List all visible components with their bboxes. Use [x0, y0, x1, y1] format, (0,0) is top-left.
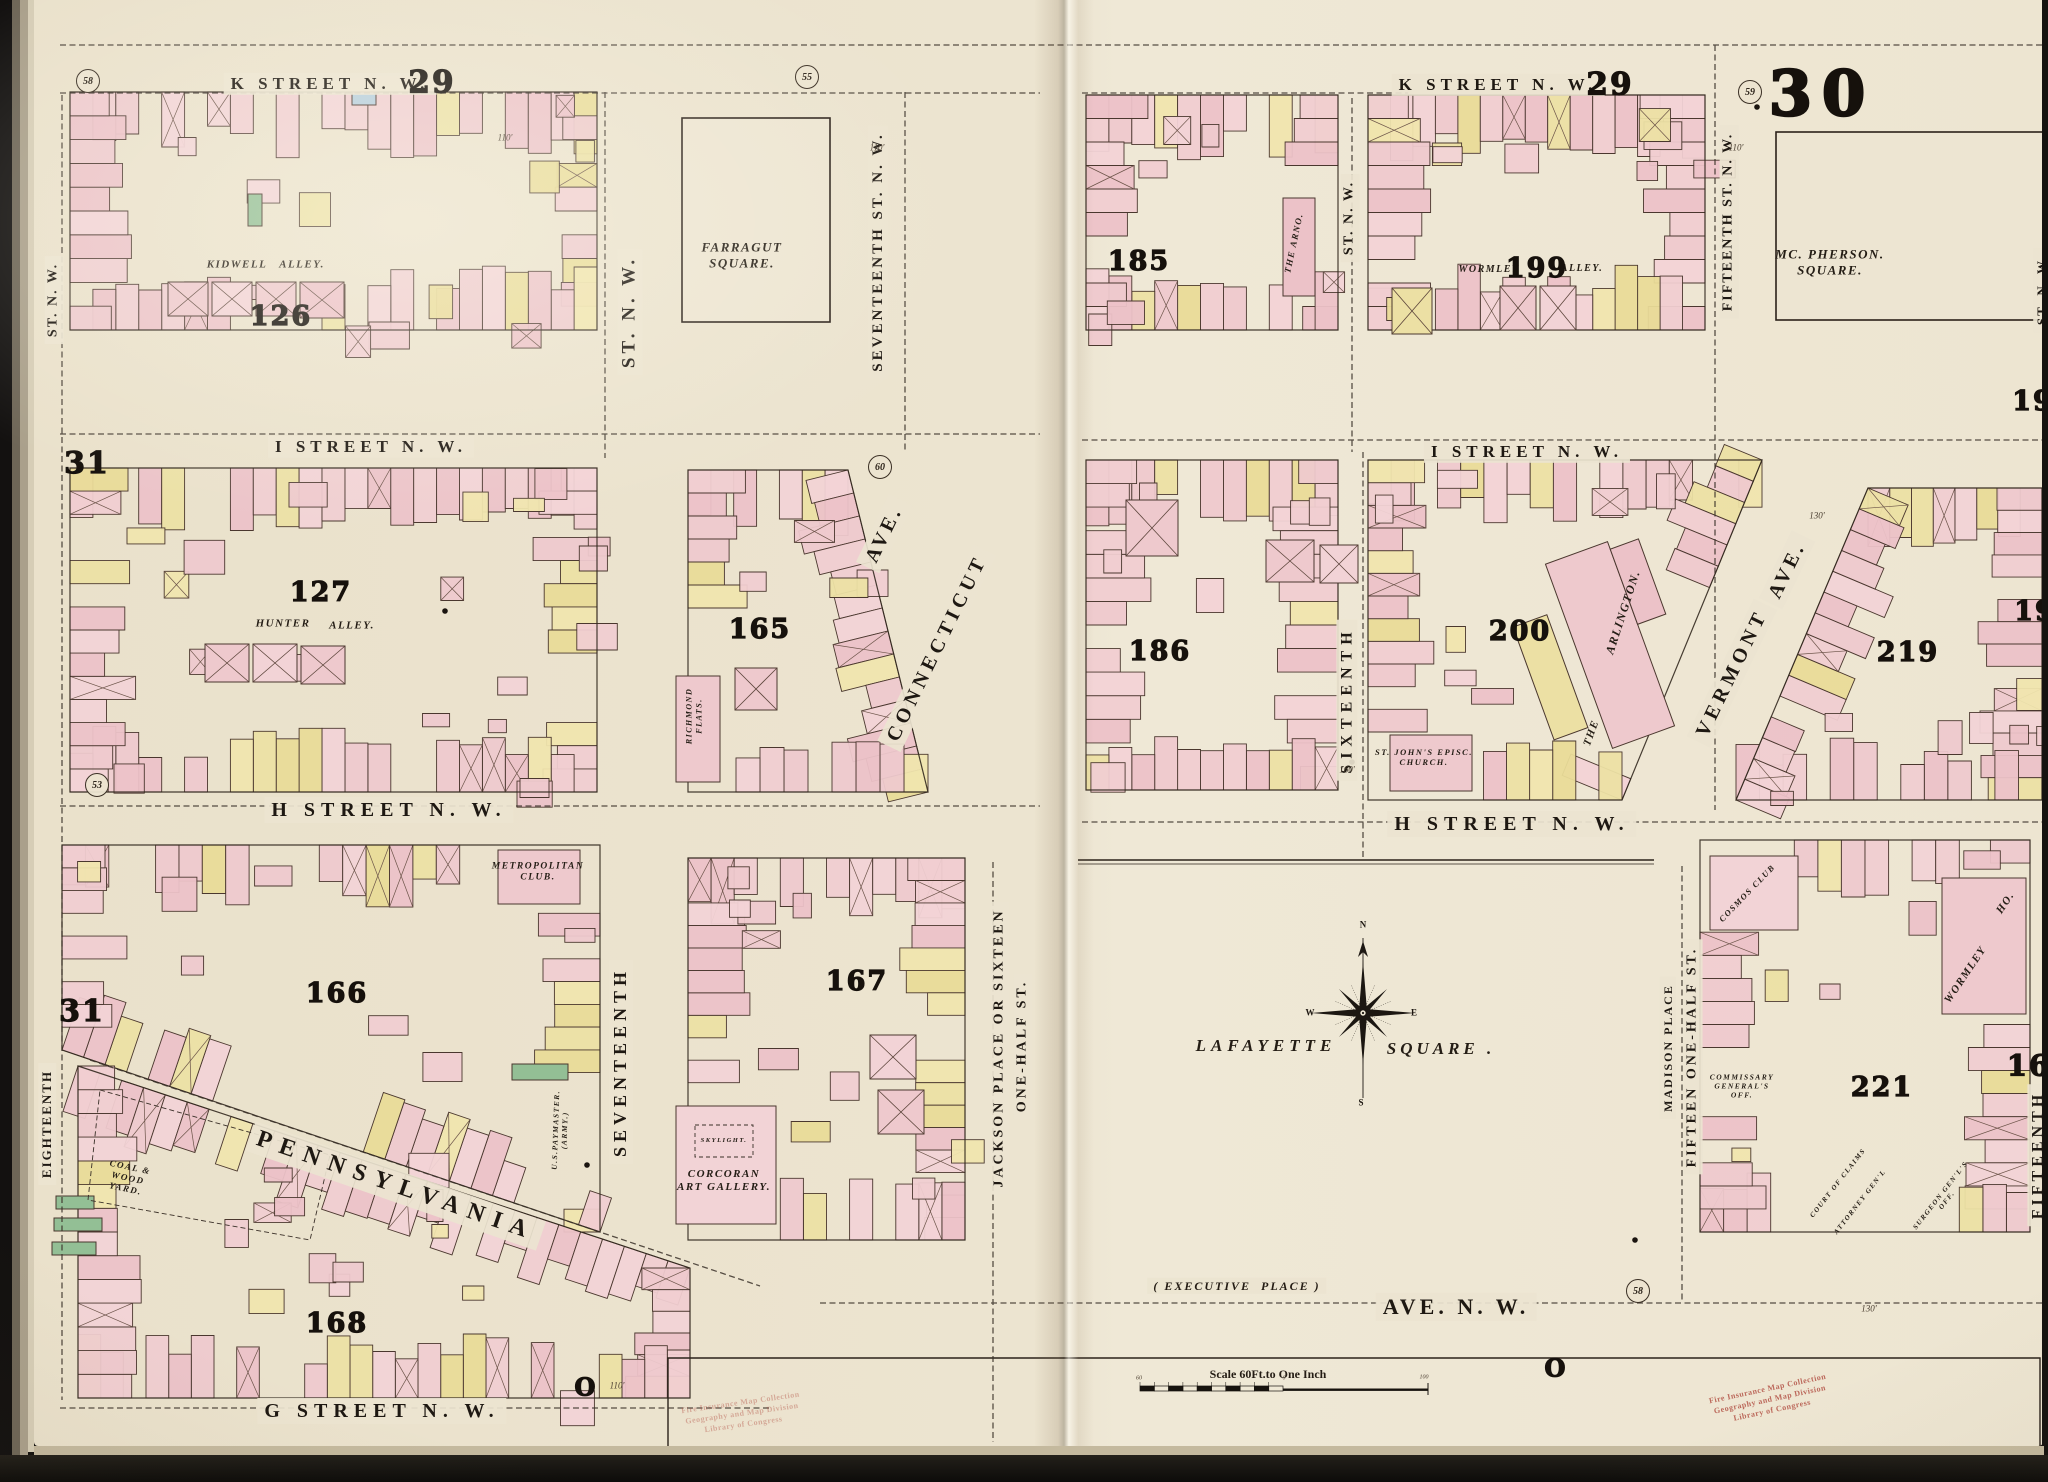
library-of-congress-stamp: Fire Insurance Map Collection Geography … — [1708, 1372, 1832, 1429]
landmark-label-kidwell-alley: ALLEY. — [279, 258, 325, 271]
scale-tick: 100 — [1420, 1374, 1429, 1381]
street-label-one-half-st: ONE-HALF ST. — [1014, 973, 1033, 1119]
block-number-166: 166 — [306, 978, 368, 1010]
street-label-eighteenth: EIGHTEENTH — [38, 1063, 56, 1185]
library-of-congress-stamp: Fire Insurance Map Collection Geography … — [681, 1390, 804, 1439]
block-number-185: 185 — [1108, 246, 1170, 278]
book-edge-left — [0, 0, 12, 1482]
scale-tick: 0 — [1283, 1375, 1286, 1382]
street-label-h-street-left: H STREET N. W. — [264, 797, 513, 823]
landmark-label-the: THE — [1581, 718, 1603, 748]
street-label-i-street-left: I STREET N. W. — [268, 436, 474, 458]
map-labels-layer: K STREET N. W.K STREET N. W.I STREET N. … — [0, 0, 2048, 1482]
street-label-connecticut: CONNECTICUT — [877, 544, 996, 752]
circled-plate-number: 58 — [1626, 1279, 1650, 1303]
landmark-label-lafayette: LAFAYETTE — [1196, 1036, 1337, 1056]
circled-plate-number: 59 — [1738, 80, 1762, 104]
landmark-label-us-paymaster: U.S.PAYMASTER. (ARMY.) — [550, 1090, 571, 1170]
page-number-n31-top: 31 — [64, 446, 110, 482]
circled-plate-number: 60 — [868, 455, 892, 479]
circled-plate-number: 58 — [76, 69, 100, 93]
landmark-label-hunter: HUNTER — [256, 617, 311, 630]
block-number-167: 167 — [826, 966, 888, 998]
page-edge-bottom — [34, 1446, 2044, 1455]
landmark-label-the-arno: THE ARNO. — [1282, 212, 1305, 274]
block-number-168: 168 — [306, 1308, 368, 1340]
dimension-label: 110' — [1729, 143, 1744, 154]
street-label-k-street-right: K STREET N. W. — [1392, 74, 1605, 96]
street-label-ave-nw: AVE. N. W. — [1376, 1293, 1537, 1321]
dimension-label: 130' — [1861, 1304, 1876, 1315]
compass-s-label: S — [1358, 1098, 1363, 1109]
landmark-label-arlington: ARLINGTON. — [1603, 568, 1644, 656]
street-label-h-street-right: H STREET N. W. — [1387, 811, 1636, 837]
compass-n-label: N — [1360, 920, 1367, 931]
block-number-219: 219 — [1877, 637, 1939, 669]
page-number-k29-left: 29 — [408, 64, 455, 101]
page-number-k29-right: 29 — [1586, 66, 1633, 103]
landmark-label-richmond-flats: RICHMOND FLATS. — [684, 688, 703, 744]
street-label-sixteenth: SIXTEENTH — [1336, 619, 1357, 780]
street-label-madison-place: MADISON PLACE — [1660, 977, 1676, 1119]
landmark-label-commissary: COMMISSARY GENERAL'S OFF. — [1710, 1073, 1774, 1100]
block-number-200: 200 — [1489, 616, 1551, 648]
landmark-label-corcoran-art-gallery: CORCORAN ART GALLERY. — [677, 1168, 771, 1194]
landmark-label-lafayette-square: SQUARE . — [1387, 1039, 1496, 1059]
landmark-label-wormley-ho-1: WORMLEY — [1942, 944, 1990, 1006]
street-label-st-nw-16th-top: ST. N. W. — [1341, 174, 1360, 262]
page-edge-strip — [20, 0, 28, 1460]
scale-label: Scale 60Ft.to One Inch — [1210, 1367, 1327, 1381]
circled-plate-number: 53 — [85, 773, 109, 797]
street-label-vermont: VERMONT — [1687, 598, 1778, 747]
compass-e-label: E — [1411, 1008, 1417, 1019]
page-number-sheet-30: 30 — [1769, 57, 1875, 131]
scanned-atlas-page: K STREET N. W.K STREET N. W.I STREET N. … — [0, 0, 2048, 1482]
compass-w-label: W — [1306, 1008, 1315, 1019]
landmark-label-farragut-square: FARRAGUT SQUARE. — [702, 239, 783, 270]
scale-tick: 60 — [1136, 1375, 1142, 1382]
landmark-label-st-johns-church: ST. JOHN'S EPISC. CHURCH. — [1375, 747, 1473, 767]
landmark-label-cosmos-club: COSMOS CLUB — [1717, 862, 1777, 924]
landmark-label-kidwell: KIDWELL — [207, 258, 268, 271]
landmark-label-coal-wood-yard: COAL & WOOD YARD. — [104, 1158, 152, 1198]
street-label-vermont-ave: AVE. — [1759, 531, 1815, 609]
landmark-label-hunter-alley: ALLEY. — [329, 619, 375, 632]
block-number-221: 221 — [1851, 1072, 1913, 1104]
street-label-st-nw-17th-west: ST. N. W. — [618, 249, 643, 375]
landmark-label-wormley-ho-2: HO. — [1994, 889, 2018, 916]
block-number-127: 127 — [290, 577, 352, 609]
landmark-label-skylight: SKYLIGHT. — [701, 1137, 748, 1145]
street-label-seventeenth: SEVENTEENTH — [609, 960, 633, 1164]
dimension-label: 110' — [610, 1381, 625, 1392]
landmark-label-surgeon-genl: SURGEON GEN'L'S OFF. — [1905, 1152, 1982, 1244]
book-edge-right — [2042, 0, 2048, 1482]
street-label-st-nw-18th-top: ST. N. W. — [45, 256, 64, 344]
street-label-pennsylvania: PENNSYLVANIA — [246, 1121, 547, 1250]
landmark-label-metropolitan-club: METROPOLITAN CLUB. — [492, 862, 584, 885]
block-number-165: 165 — [729, 614, 791, 646]
page-number-n31-bottom: 31 — [59, 994, 105, 1030]
block-number-186: 186 — [1129, 636, 1191, 668]
landmark-label-mcpherson-square: MC. PHERSON. SQUARE. — [1775, 246, 1884, 277]
street-label-k-street-left: K STREET N. W. — [224, 73, 437, 95]
dimension-label: 160' — [1339, 765, 1354, 776]
circled-plate-number: 55 — [795, 65, 819, 89]
street-label-executive-place: ( EXECUTIVE PLACE ) — [1147, 1278, 1326, 1294]
street-label-connecticut-ave: AVE. — [856, 495, 912, 573]
street-label-seventeenth-st-nw: SEVENTEENTH ST. N. W. — [868, 125, 888, 378]
block-number-126: 126 — [250, 301, 312, 333]
street-label-fifteen-one-half-st: FIFTEEN ONE-HALF ST. — [1684, 940, 1703, 1175]
book-edge-bottom — [0, 1455, 2048, 1482]
street-label-i-street-right: I STREET N. W. — [1424, 441, 1630, 463]
block-number-199: 199 — [1506, 253, 1568, 285]
dimension-label: 130' — [1809, 511, 1824, 522]
dimension-label: 110' — [498, 133, 513, 144]
mark-big-o-right: O — [1545, 1355, 1568, 1384]
page-edge-strip — [12, 0, 20, 1470]
page-edge-strip — [28, 0, 34, 1452]
street-label-fifteenth-st-nw: FIFTEENTH ST. N. W. — [1720, 126, 1739, 319]
street-label-g-street: G STREET N. W. — [257, 1398, 506, 1424]
dimension-label: 110' — [870, 143, 885, 154]
street-label-jackson-place: JACKSON PLACE OR SIXTEEN — [991, 901, 1010, 1194]
mark-big-o-left: O — [575, 1374, 598, 1403]
